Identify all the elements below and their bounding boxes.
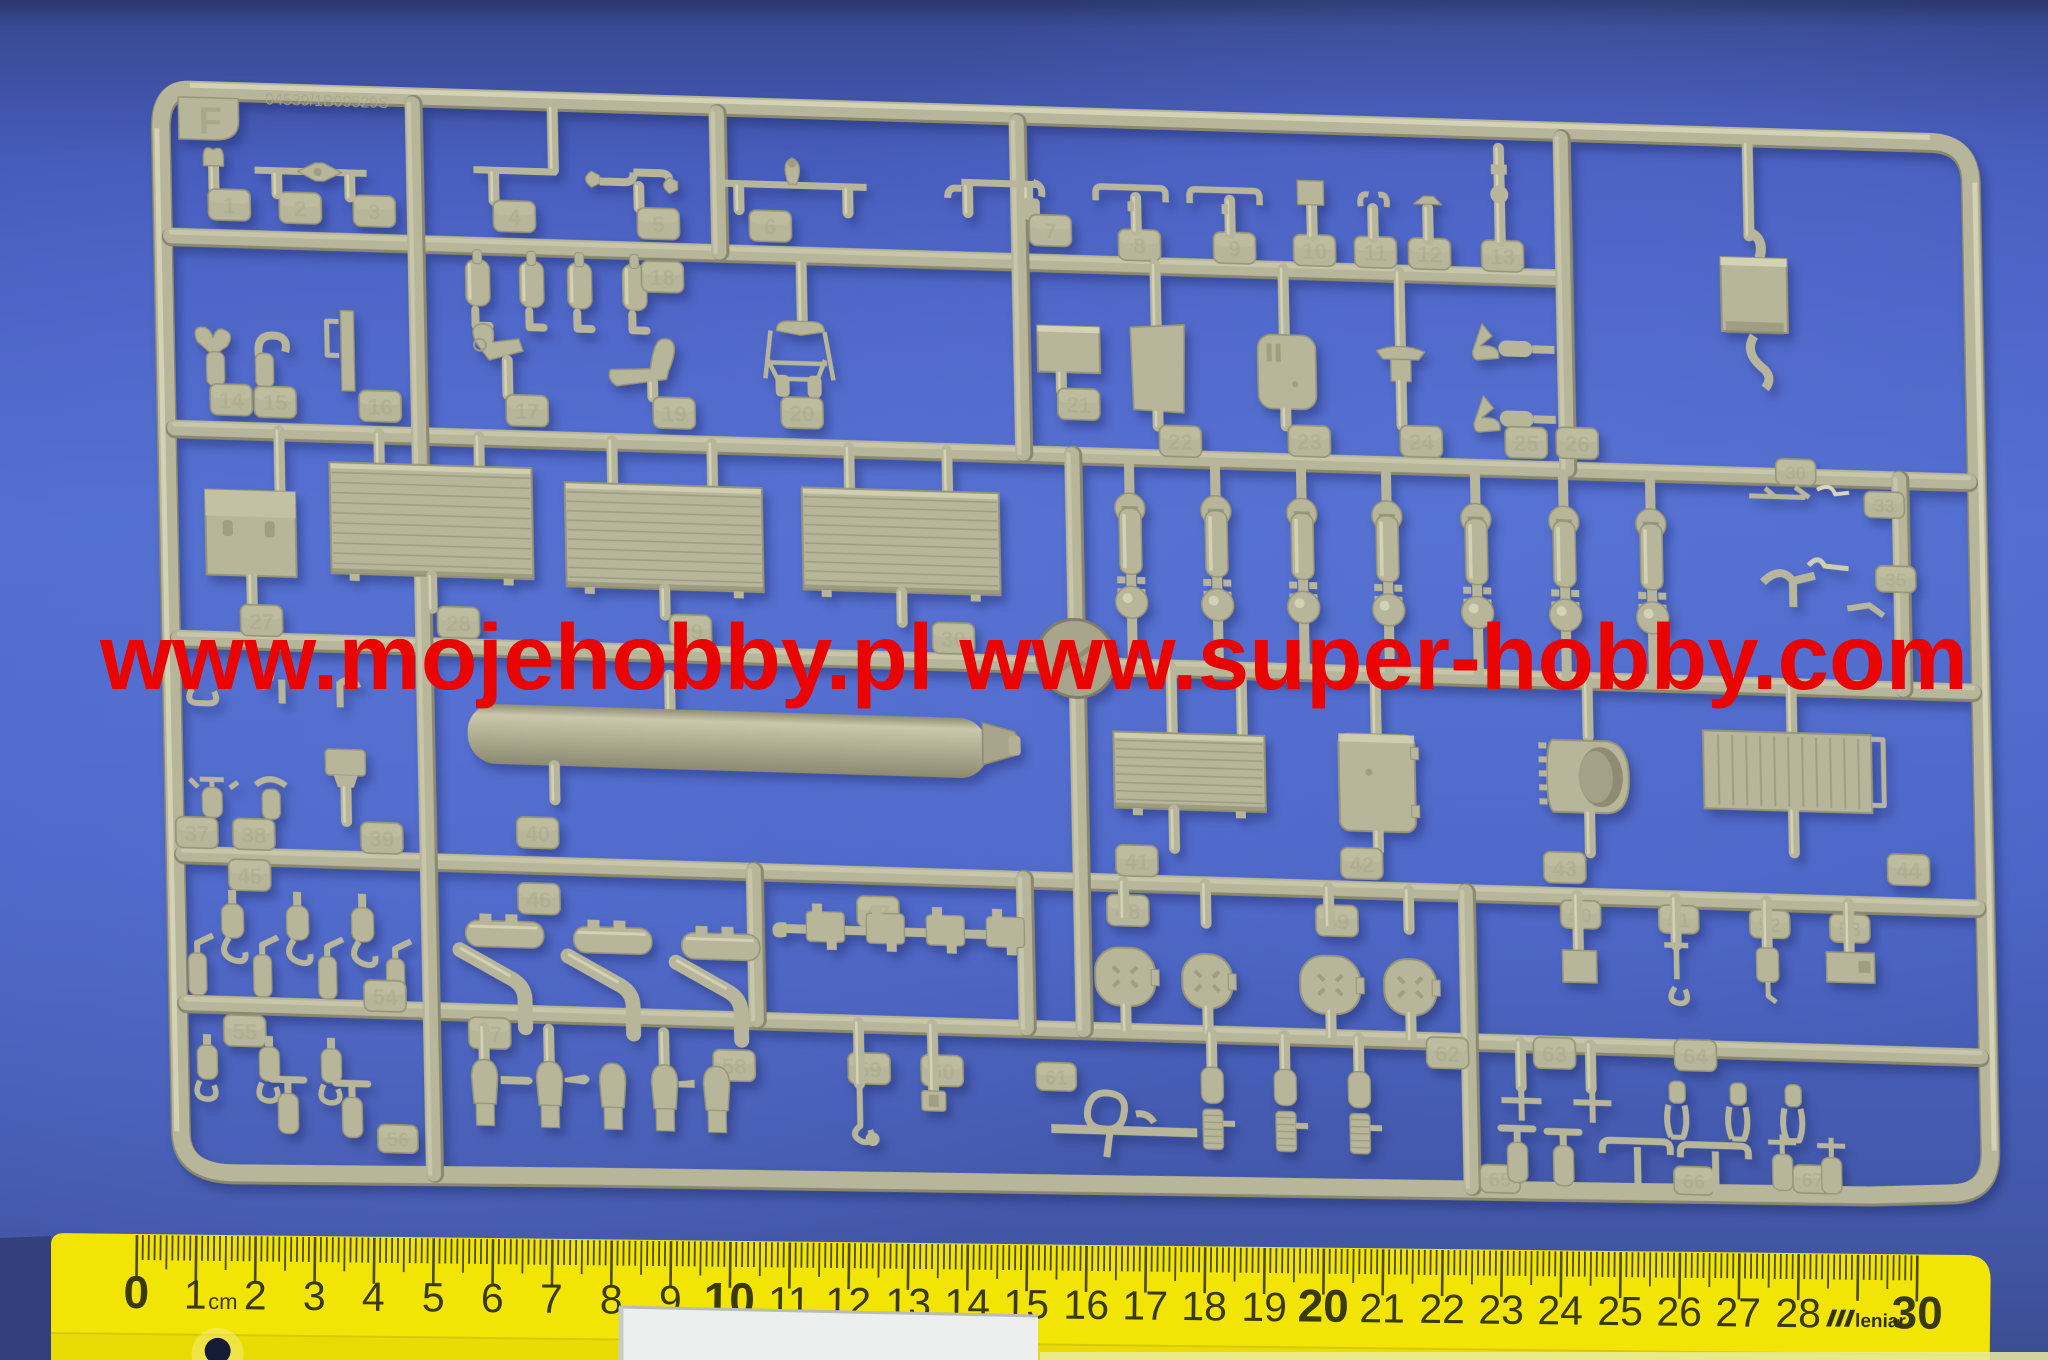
svg-text:0: 0 [123,1266,149,1318]
svg-text:24: 24 [1409,430,1435,456]
svg-text:1: 1 [184,1272,207,1318]
svg-text:42: 42 [1349,852,1374,878]
svg-text:16: 16 [368,395,393,421]
svg-text:44: 44 [1896,858,1922,884]
svg-text:40: 40 [525,821,550,847]
svg-text:9: 9 [1228,236,1241,261]
svg-text:7: 7 [540,1276,563,1322]
svg-text:14: 14 [219,388,245,414]
svg-text:62: 62 [1435,1041,1460,1067]
svg-text:24: 24 [1537,1287,1583,1334]
svg-text:27: 27 [1715,1289,1761,1336]
svg-text:F: F [198,100,222,143]
svg-text:17: 17 [515,399,540,425]
svg-text:16: 16 [1063,1282,1109,1329]
svg-text:5: 5 [422,1274,445,1320]
svg-text:55: 55 [232,1019,257,1045]
svg-text:11: 11 [1364,241,1388,267]
svg-text:37: 37 [184,821,209,847]
svg-text:61: 61 [1045,1067,1068,1090]
svg-text:5: 5 [652,212,665,237]
svg-text:46: 46 [526,887,551,913]
svg-text:21: 21 [1066,393,1091,419]
svg-text:15: 15 [263,390,288,416]
svg-text:2: 2 [244,1272,267,1318]
svg-text:leniar: leniar [1855,1311,1907,1333]
svg-text:23: 23 [1297,429,1322,455]
svg-text:10: 10 [1302,239,1327,265]
svg-text:54: 54 [372,984,398,1010]
svg-text:45: 45 [237,863,262,889]
svg-text:23: 23 [1478,1286,1524,1333]
svg-text:3: 3 [303,1273,326,1319]
svg-text:3: 3 [368,200,381,225]
svg-text:6: 6 [481,1275,504,1321]
svg-text:26: 26 [1565,431,1590,457]
svg-text:20: 20 [789,401,814,427]
svg-text:39: 39 [369,826,394,852]
svg-text:25: 25 [1597,1288,1643,1335]
svg-text:13: 13 [1490,244,1515,270]
svg-text:7: 7 [1044,219,1057,244]
svg-text:8: 8 [1133,234,1146,259]
svg-text:4: 4 [508,205,521,230]
svg-text:22: 22 [1168,430,1193,456]
svg-text:1: 1 [223,193,236,218]
svg-text:25: 25 [1514,431,1539,457]
svg-text:41: 41 [1124,849,1149,875]
svg-text:67: 67 [1801,1170,1824,1193]
svg-text:22: 22 [1419,1286,1465,1333]
svg-text:28: 28 [1775,1290,1821,1337]
svg-text:64: 64 [1683,1044,1709,1070]
svg-text:18: 18 [1181,1283,1227,1330]
svg-text:19: 19 [662,401,687,427]
svg-text:43: 43 [1552,856,1577,882]
svg-text:2: 2 [294,196,307,221]
svg-text:17: 17 [1122,1282,1168,1329]
svg-text:12: 12 [1417,242,1442,268]
svg-text:30: 30 [1785,462,1806,484]
svg-text:21: 21 [1359,1285,1405,1332]
svg-text:63: 63 [1542,1041,1567,1067]
svg-text:20: 20 [1297,1279,1349,1332]
svg-text:26: 26 [1656,1288,1702,1335]
svg-text:56: 56 [386,1129,409,1152]
svg-text:18: 18 [650,265,675,291]
svg-text:cm: cm [208,1289,238,1314]
svg-text:6: 6 [764,215,777,240]
svg-text:19: 19 [1241,1284,1287,1331]
svg-text:66: 66 [1683,1171,1706,1194]
svg-text:33: 33 [1874,495,1895,517]
svg-text:4: 4 [362,1274,385,1320]
svg-text:35: 35 [1885,569,1906,591]
svg-text:www.mojehobby.pl www.super-hob: www.mojehobby.pl www.super-hobby.com [99,605,1968,709]
svg-text:38: 38 [241,822,266,848]
